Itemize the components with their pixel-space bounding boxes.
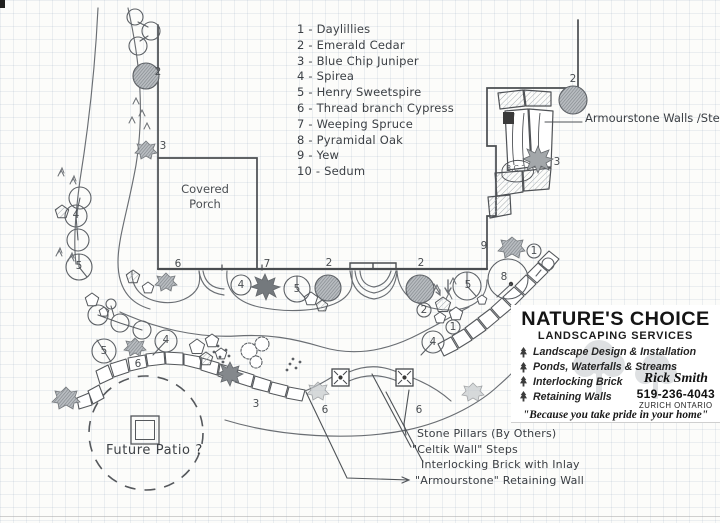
emerald-cedar	[315, 275, 341, 301]
plant-number-5: 5	[294, 284, 301, 295]
annotation-label: "Armourstone" Retaining Wall	[415, 474, 584, 487]
plant-number-6: 6	[135, 359, 142, 370]
card-contact-phone: 519-236-4043	[637, 387, 715, 401]
dark-post-square	[503, 112, 514, 124]
card-contact-name: Rick Smith	[637, 371, 715, 387]
card-title: NATURE'S CHOICE	[509, 308, 720, 331]
plant-number-4: 4	[430, 337, 437, 348]
legend-item: 3 - Blue Chip Juniper	[297, 54, 454, 70]
legend-item: 4 - Spirea	[297, 69, 454, 85]
business-card: NATURE'S CHOICE LANDSCAPING SERVICES Lan…	[511, 305, 720, 423]
card-service-label: Landscape Design & Installation	[533, 346, 696, 358]
patio-dashed-circle	[89, 376, 203, 490]
weeping-spruce	[251, 274, 280, 300]
celtik-wall-steps	[349, 367, 397, 381]
legend-item: 1 - Daylillies	[297, 22, 454, 38]
plant-number-5: 5	[76, 261, 83, 272]
plant-number-2: 2	[155, 67, 162, 78]
lawn-edge-left	[75, 8, 98, 264]
porch-steps	[199, 271, 224, 295]
stone-pillars	[332, 369, 413, 386]
plant-number-2: 2	[421, 305, 428, 316]
berm-top-edge	[120, 307, 469, 352]
covered-porch-line1: Covered	[170, 182, 240, 197]
landscape-plan-scan: 1 - Daylillies2 - Emerald Cedar3 - Blue …	[0, 0, 720, 523]
annotation-label: Stone Pillars (By Others)	[417, 427, 556, 440]
card-tagline: "Because you take pride in your home"	[511, 409, 720, 421]
annotation-label: Interlocking Brick with Inlay	[421, 458, 580, 471]
legend-item: 10 - Sedum	[297, 164, 454, 180]
card-service-label: Retaining Walls	[533, 391, 612, 403]
plant-number-3: 3	[253, 399, 260, 410]
emerald-cedar	[559, 86, 587, 114]
covered-porch-line2: Porch	[170, 197, 240, 212]
plant-number-7: 7	[264, 259, 271, 270]
door-steps	[350, 271, 397, 299]
plant-number-4: 4	[238, 280, 245, 291]
covered-porch-outline	[158, 158, 257, 269]
covered-porch-label: Covered Porch	[170, 182, 240, 212]
emerald-cedar	[406, 275, 434, 303]
legend-item: 5 - Henry Sweetspire	[297, 85, 454, 101]
scan-edge-line	[0, 516, 720, 517]
card-contact-block: Rick Smith 519-236-4043 ZURICH ONTARIO	[637, 371, 715, 410]
legend-item: 6 - Thread branch Cypress	[297, 101, 454, 117]
tree-icon	[518, 391, 529, 402]
plant-number-9: 9	[481, 241, 488, 252]
plant-number-8: 8	[501, 272, 508, 283]
card-service-item: Landscape Design & Installation	[518, 345, 696, 360]
card-service-label: Interlocking Brick	[533, 376, 622, 388]
plant-number-1: 1	[531, 246, 538, 257]
plant-number-6: 6	[416, 405, 423, 416]
bed-edge-left	[118, 8, 150, 309]
plant-number-5: 5	[465, 280, 472, 291]
annotation-label: "Celtik Wall" Steps	[412, 443, 518, 456]
plant-number-2: 2	[326, 258, 333, 269]
plant-legend: 1 - Daylillies2 - Emerald Cedar3 - Blue …	[297, 22, 454, 180]
patio-square-inner	[136, 421, 155, 440]
plant-number-6: 6	[175, 259, 182, 270]
plant-number-3: 3	[160, 141, 167, 152]
plant-number-1: 1	[450, 322, 457, 333]
future-patio	[89, 376, 203, 490]
future-patio-label: Future Patio ?	[106, 443, 203, 458]
legend-item: 8 - Pyramidal Oak	[297, 133, 454, 149]
plant-number-3: 3	[554, 157, 561, 168]
card-subtitle: LANDSCAPING SERVICES	[511, 330, 720, 342]
plant-number-4: 4	[73, 210, 80, 221]
armourstone-walls-label: Armourstone Walls /Steps	[585, 111, 720, 125]
tree-icon	[518, 347, 529, 358]
bc3-label: B.C.3	[506, 164, 526, 173]
walkway-edge-right	[413, 378, 451, 401]
plant-number-2: 2	[570, 74, 577, 85]
legend-item: 2 - Emerald Cedar	[297, 38, 454, 54]
plant-number-5: 5	[101, 346, 108, 357]
plant-number-6: 6	[322, 405, 329, 416]
tree-icon	[518, 362, 529, 373]
plant-number-4: 4	[163, 335, 170, 346]
scan-corner-mark	[0, 0, 5, 8]
legend-item: 9 - Yew	[297, 148, 454, 164]
plant-number-2: 2	[418, 258, 425, 269]
tree-icon	[518, 376, 529, 387]
legend-item: 7 - Weeping Spruce	[297, 117, 454, 133]
